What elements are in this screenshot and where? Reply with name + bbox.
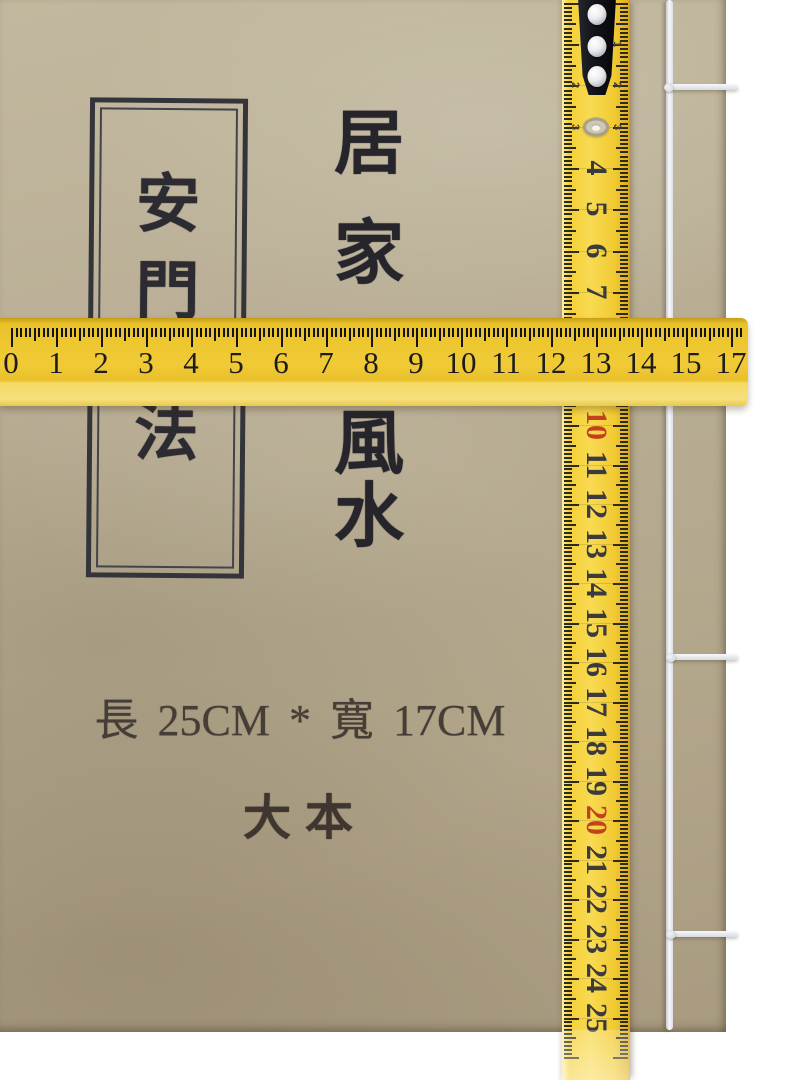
tape-tick [613, 860, 628, 862]
tape-tick [564, 48, 572, 50]
ruler-tick [218, 328, 220, 337]
tape-grommet [583, 118, 609, 137]
tape-tick [620, 421, 628, 423]
tape-overexposed-area [562, 1030, 630, 1080]
tape-tick [564, 907, 572, 909]
tape-tick [564, 197, 572, 199]
tape-tick [620, 429, 628, 431]
tape-tick [620, 139, 628, 141]
tape-tick [620, 891, 628, 893]
ruler-tick [533, 328, 535, 337]
tape-tick [620, 757, 628, 759]
tape-tick [564, 213, 572, 215]
ruler-tick [268, 328, 270, 337]
ruler-tick [200, 328, 202, 337]
thread-knot [664, 83, 674, 92]
tape-tick [620, 284, 628, 286]
ruler-tick [484, 328, 486, 341]
tape-tick [564, 476, 572, 478]
tape-tick [620, 895, 628, 897]
tape-tick [620, 453, 628, 455]
ruler-tick [592, 328, 594, 337]
tape-tick [564, 106, 576, 108]
tape-tick [620, 769, 628, 771]
tape-tick [564, 36, 572, 38]
tape-tick [564, 729, 572, 731]
ruler-tick [740, 328, 742, 337]
tape-tick [564, 551, 572, 553]
tape-tick [620, 296, 628, 298]
ruler-tick [659, 328, 661, 337]
ruler-tick [529, 328, 531, 341]
tape-tick [620, 160, 628, 162]
tape-tick [620, 646, 628, 648]
tape-tick [613, 168, 628, 170]
tape-number: 19 [579, 766, 613, 796]
tape-tick [564, 757, 572, 759]
binding-thread-vertical [666, 0, 673, 1030]
tape-tick [620, 935, 628, 937]
tape-tick [564, 725, 572, 727]
tape-tick [620, 871, 628, 873]
tape-number: 21 [579, 845, 613, 875]
tape-tick [564, 65, 576, 67]
tape-tick [564, 189, 576, 191]
ruler-number: 5 [228, 347, 244, 378]
tape-tick [613, 899, 628, 901]
tape-tick [620, 508, 628, 510]
measuring-tape-vertical: 4567101112131415161718192021222324252312… [562, 0, 630, 1080]
tape-tick [620, 634, 628, 636]
tape-tick [564, 670, 572, 672]
tape-tick [620, 222, 628, 224]
binding-thread-stitch-top [668, 84, 738, 90]
tape-tick [564, 234, 572, 236]
tape-tick [564, 143, 572, 145]
tape-tick [620, 773, 628, 775]
tape-edge-number: 2 [569, 82, 581, 88]
tape-tick [564, 871, 572, 873]
ruler-tick [362, 328, 364, 337]
tape-tick [620, 824, 628, 826]
tape-tick [620, 587, 628, 589]
tape-tick [620, 863, 628, 865]
tape-tick [620, 1002, 628, 1004]
thread-knot [666, 653, 676, 662]
tape-tick [620, 176, 628, 178]
tape-tick [564, 642, 576, 644]
ruler-tick [20, 328, 22, 337]
tape-tick [620, 205, 628, 207]
ruler-tick [605, 328, 607, 337]
tape-tick [620, 713, 628, 715]
tape-tick [564, 686, 572, 688]
tape-tick [564, 308, 572, 310]
tape-tick [564, 164, 572, 166]
tape-tick [564, 488, 572, 490]
tape-tick [620, 611, 628, 613]
tape-tick [620, 234, 628, 236]
tape-tick [564, 863, 572, 865]
ruler-tick [520, 328, 522, 337]
tape-tick [620, 658, 628, 660]
tape-tick [620, 615, 628, 617]
tape-tick [564, 222, 572, 224]
tape-tick [564, 848, 572, 850]
tape-tick [564, 180, 572, 182]
frame-title-char: 門 [135, 260, 200, 325]
tape-tick [564, 690, 572, 692]
tape-tick [620, 686, 628, 688]
ruler-tick [470, 328, 472, 337]
tape-tick [564, 218, 572, 220]
ruler-tick [263, 328, 265, 337]
tape-tick [620, 848, 628, 850]
tape-tick [616, 484, 628, 486]
tape-tick [620, 52, 628, 54]
ruler-tick [142, 328, 144, 337]
tape-grommet-hole [592, 124, 601, 131]
tape-tick [620, 246, 628, 248]
tape-tick [564, 698, 572, 700]
tape-tick [620, 468, 628, 470]
ruler-tick [367, 328, 369, 337]
ruler-tick [232, 328, 234, 337]
tape-tick [564, 935, 572, 937]
tape-tick [564, 271, 576, 273]
tape-tick [564, 1002, 572, 1004]
ruler-tick [133, 328, 135, 337]
tape-tick [616, 230, 628, 232]
tape-tick [620, 488, 628, 490]
ruler-tick [448, 328, 450, 337]
ruler-tick [452, 328, 454, 337]
main-title-char: 風 [334, 410, 404, 480]
tape-tick [564, 512, 572, 514]
tape-tick [564, 769, 572, 771]
ruler-tick [718, 328, 720, 337]
tape-tick [620, 114, 628, 116]
tape-tick [564, 1010, 572, 1012]
tape-tick [564, 453, 572, 455]
tape-tick [564, 425, 579, 427]
tape-tick [564, 172, 572, 174]
ruler-tick [691, 328, 693, 337]
tape-tick [620, 844, 628, 846]
ruler-number: 10 [446, 347, 477, 378]
tape-number: 16 [579, 647, 613, 677]
ruler-tick [79, 328, 81, 341]
tape-tick [564, 15, 572, 17]
tape-tick [564, 259, 572, 261]
tape-tick [564, 226, 572, 228]
tape-tick [564, 102, 572, 104]
tape-tick [564, 516, 572, 518]
ruler-tick [457, 328, 459, 337]
tape-tick [564, 508, 572, 510]
tape-tick [613, 781, 628, 783]
tape-tick [564, 547, 572, 549]
tape-tick [620, 288, 628, 290]
binding-thread-stitch-bottom [670, 931, 738, 937]
tape-tick [564, 962, 572, 964]
tape-tick [620, 966, 628, 968]
ruler-tick [119, 328, 121, 337]
tape-tick [620, 954, 628, 956]
ruler-tick [223, 328, 225, 337]
tape-tick [620, 986, 628, 988]
tape-tick [564, 52, 572, 54]
tape-tick [564, 646, 572, 648]
tape-tick [620, 151, 628, 153]
tape-tick [564, 694, 572, 696]
tape-tick [564, 713, 572, 715]
tape-tick [564, 824, 572, 826]
tape-tick [564, 721, 576, 723]
tape-tick [616, 761, 628, 763]
tape-tick [564, 461, 572, 463]
ruler-number: 14 [626, 347, 657, 378]
tape-tick [620, 1014, 628, 1016]
ruler-tick [304, 328, 306, 341]
ruler-tick [164, 328, 166, 337]
tape-tick [620, 308, 628, 310]
tape-tick [564, 139, 572, 141]
ruler-tick [358, 328, 360, 337]
tape-tick [564, 209, 579, 211]
tape-tick [564, 816, 572, 818]
tape-tick [564, 958, 576, 960]
tape-tick [620, 567, 628, 569]
tape-tick [620, 990, 628, 992]
tape-tick [620, 950, 628, 952]
tape-tick [620, 263, 628, 265]
tape-tick [564, 623, 579, 625]
tape-tick [616, 65, 628, 67]
tape-tick [620, 903, 628, 905]
tape-tick [564, 796, 572, 798]
tape-tick [564, 879, 576, 881]
tape-tick [620, 788, 628, 790]
ruler-tick [538, 328, 540, 337]
binding-thread-stitch-middle [670, 654, 738, 660]
tape-number: 25 [579, 1003, 613, 1033]
ruler-tick [295, 328, 297, 337]
ruler-number: 3 [138, 347, 154, 378]
tape-number: 23 [579, 924, 613, 954]
tape-tick [564, 946, 572, 948]
ruler-tick [493, 328, 495, 337]
tape-tick [620, 56, 628, 58]
tape-tick [564, 205, 572, 207]
tape-tick [564, 939, 579, 941]
ruler-tick [290, 328, 292, 337]
tape-tick [564, 741, 579, 743]
tape-end-clip [578, 0, 616, 95]
ruler-number: 12 [536, 347, 567, 378]
tape-tick [564, 417, 572, 419]
tape-tick [620, 717, 628, 719]
tape-tick [613, 1018, 628, 1020]
tape-tick [564, 942, 572, 944]
tape-tick [620, 496, 628, 498]
tape-tick [564, 634, 572, 636]
tape-tick [620, 575, 628, 577]
tape-tick [564, 931, 572, 933]
ruler-tick [637, 328, 639, 337]
tape-tick [564, 887, 572, 889]
tape-tick [620, 856, 628, 858]
tape-tick [620, 255, 628, 257]
tape-tick [564, 300, 572, 302]
tape-tick [620, 709, 628, 711]
tape-tick [564, 950, 572, 952]
ruler-tick [443, 328, 445, 337]
tape-tick [564, 1014, 572, 1016]
tape-tick [564, 484, 576, 486]
tape-tick [564, 662, 579, 664]
tape-tick [620, 836, 628, 838]
tape-tick [564, 457, 572, 459]
tape-tick [564, 860, 579, 862]
tape-tick [620, 48, 628, 50]
tape-tick [564, 998, 576, 1000]
tape-tick [564, 804, 572, 806]
tape-tick [613, 209, 628, 211]
tape-tick [620, 638, 628, 640]
ruler-tick [673, 328, 675, 337]
tape-number: 20 [579, 805, 613, 835]
tape-tick [564, 970, 572, 972]
ruler-tick [700, 328, 702, 337]
tape-tick [564, 255, 572, 257]
tape-tick [620, 698, 628, 700]
ruler-number: 0 [3, 347, 19, 378]
tape-tick [620, 705, 628, 707]
tape-tick [564, 168, 579, 170]
ruler-tick [565, 328, 567, 337]
tape-number: 18 [579, 726, 613, 756]
tape-tick [616, 106, 628, 108]
tape-tick [564, 559, 572, 561]
tape-tick [620, 213, 628, 215]
tape-tick [564, 626, 572, 628]
tape-tick [620, 197, 628, 199]
tape-tick [620, 480, 628, 482]
tape-tick [564, 777, 572, 779]
tape-tick [613, 465, 628, 467]
tape-tick [620, 931, 628, 933]
tape-tick [564, 492, 572, 494]
tape-tick [564, 185, 572, 187]
tape-tick [616, 603, 628, 605]
tape-tick [564, 749, 572, 751]
ruler-tick [349, 328, 351, 341]
ruler-tick [380, 328, 382, 337]
tape-tick [620, 15, 628, 17]
tape-tick [564, 536, 572, 538]
tape-tick [564, 524, 576, 526]
ruler-tick [160, 328, 162, 337]
tape-tick [620, 970, 628, 972]
ruler-tick [475, 328, 477, 337]
ruler-tick [25, 328, 27, 337]
tape-tick [564, 974, 572, 976]
tape-tick [564, 532, 572, 534]
tape-tick [564, 540, 572, 542]
tape-tick [620, 437, 628, 439]
ruler-number: 11 [491, 347, 521, 378]
tape-tick [564, 994, 572, 996]
ruler-tick [583, 328, 585, 337]
main-title-char: 水 [334, 483, 404, 553]
ruler-tick [187, 328, 189, 337]
tape-tick [564, 579, 572, 581]
tape-tick [564, 792, 572, 794]
tape-tick [613, 504, 628, 506]
tape-tick [564, 409, 572, 411]
tape-tick [620, 69, 628, 71]
ruler-tick [709, 328, 711, 341]
tape-number: 4 [579, 161, 613, 176]
tape-tick [564, 587, 572, 589]
tape-tick [564, 788, 572, 790]
ruler-tick [574, 328, 576, 341]
ruler-tick [695, 328, 697, 337]
tape-tick [620, 1025, 628, 1027]
tape-tick [564, 284, 572, 286]
ruler-tick [430, 328, 432, 337]
tape-tick [564, 899, 579, 901]
main-title-char: 居 [334, 110, 404, 180]
ruler-tick [632, 328, 634, 337]
tape-tick [620, 749, 628, 751]
ruler-tick [403, 328, 405, 337]
tape-tick [620, 143, 628, 145]
ruler-tick [182, 328, 184, 337]
tape-tick [564, 595, 572, 597]
ruler-tick [376, 328, 378, 337]
tape-number: 11 [579, 450, 613, 478]
ruler-tick [128, 328, 130, 337]
tape-tick [564, 544, 579, 546]
tape-tick [620, 226, 628, 228]
tape-tick [620, 666, 628, 668]
tape-tick [564, 449, 572, 451]
clip-rivet [588, 4, 607, 25]
ruler-tick [389, 328, 391, 337]
ruler-tick [38, 328, 40, 337]
ruler-tick [155, 328, 157, 337]
tape-tick [564, 599, 572, 601]
ruler-tick [331, 328, 333, 337]
tape-tick [564, 583, 579, 585]
tape-tick [613, 251, 628, 253]
tape-tick [620, 512, 628, 514]
ruler-tick [169, 328, 171, 341]
tape-tick [564, 500, 572, 502]
tape-tick [564, 705, 572, 707]
tape-tick [564, 753, 572, 755]
ruler-tick [601, 328, 603, 337]
tape-tick [620, 796, 628, 798]
ruler-tick [668, 328, 670, 337]
tape-tick [564, 733, 572, 735]
tape-tick [564, 496, 572, 498]
tape-tick [564, 251, 579, 253]
ruler-tick [124, 328, 126, 341]
frame-title-char: 法 [134, 401, 199, 466]
